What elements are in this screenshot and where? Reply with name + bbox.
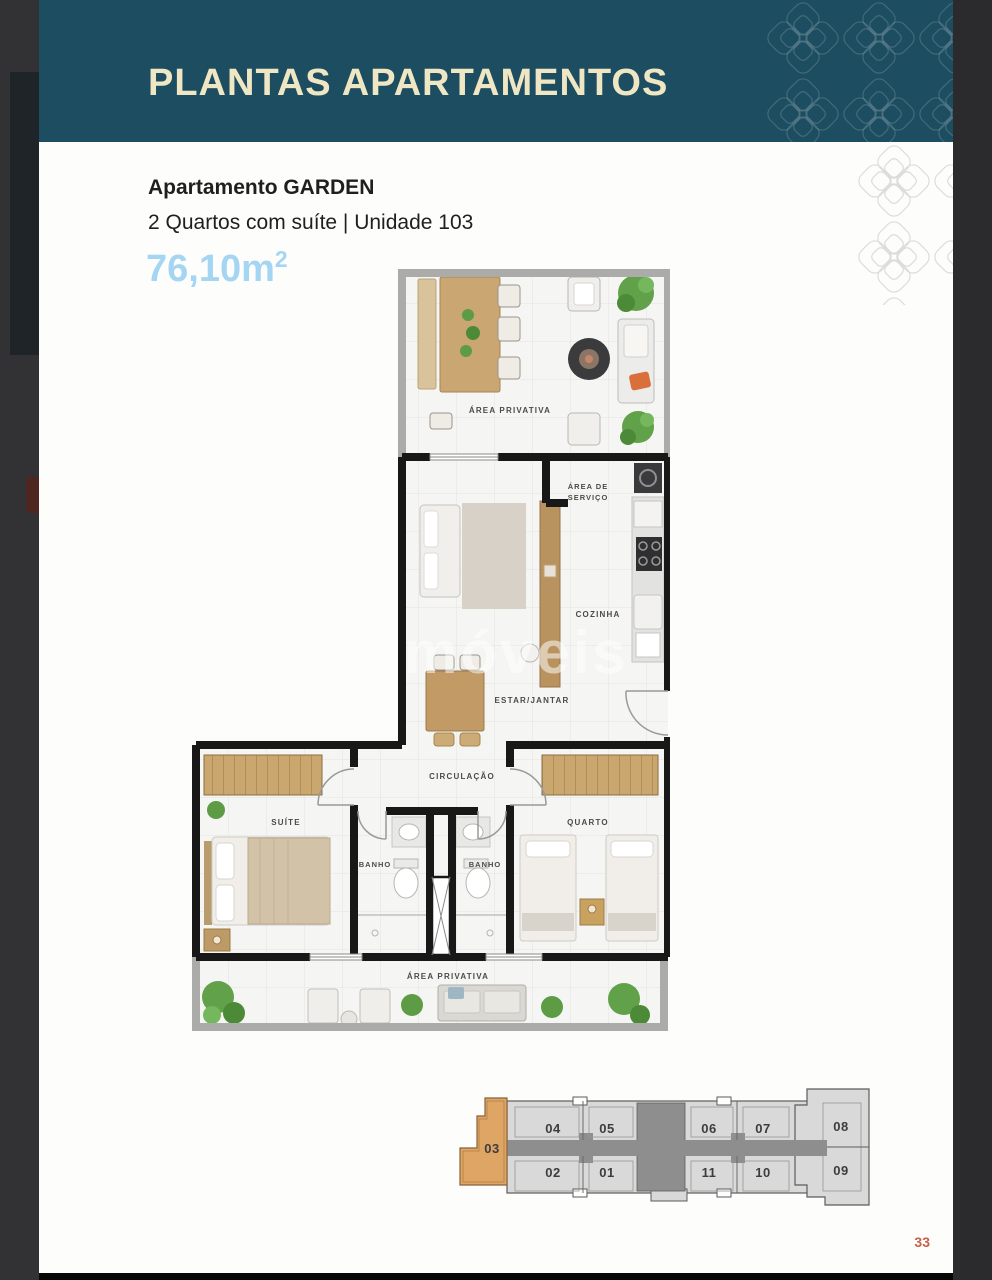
toilet	[394, 868, 418, 898]
chair	[308, 989, 338, 1023]
bed-runner	[522, 913, 574, 931]
suite-furniture	[204, 755, 330, 951]
brochure-page: PLANTAS APARTAMENTOS Apartamento GARDEN …	[0, 0, 992, 1280]
page-number: 33	[875, 1234, 930, 1250]
apartment-specs: 2 Quartos com suíte | Unidade 103	[148, 211, 473, 235]
wardrobe	[542, 755, 658, 795]
building-key-plan: 03 04 05 06 07 08 02 01 11 10 09	[455, 1085, 885, 1215]
bed-runner	[608, 913, 656, 931]
room-label-service-1: ÁREA DE	[568, 482, 608, 491]
terrace-bottom-floor	[196, 957, 664, 1029]
plant	[207, 801, 225, 819]
plant	[541, 996, 563, 1018]
unit-label-06: 06	[701, 1121, 716, 1136]
kitchen-sink	[636, 633, 660, 657]
unit-label-07: 07	[755, 1121, 770, 1136]
basin	[463, 824, 483, 840]
laundry-sink	[634, 501, 662, 527]
chair	[498, 357, 520, 379]
unit-label-08: 08	[833, 1119, 848, 1134]
page-title: PLANTAS APARTAMENTOS	[148, 62, 668, 105]
chair	[434, 733, 454, 746]
background-red-fragment	[26, 477, 39, 513]
toilet	[466, 868, 490, 898]
unit-label-10: 10	[755, 1165, 770, 1180]
unit-label-09: 09	[833, 1163, 848, 1178]
washing-machine	[634, 463, 662, 493]
background-photo-fragment	[10, 72, 39, 355]
room-label-bath-left: BANHO	[359, 860, 392, 869]
floor-plan: ÁREA PRIVATIVA	[190, 265, 670, 1035]
room-label-living: ESTAR/JANTAR	[495, 696, 570, 705]
chair	[360, 989, 390, 1023]
fridge	[634, 595, 662, 629]
blue-pillow	[448, 987, 464, 999]
rug	[462, 503, 526, 609]
plant	[401, 994, 423, 1016]
room-label-terrace-bottom: ÁREA PRIVATIVA	[407, 972, 489, 981]
basin	[399, 824, 419, 840]
room-label-terrace-top: ÁREA PRIVATIVA	[469, 406, 551, 415]
unit-label-11: 11	[702, 1165, 717, 1180]
room-label-suite: SUÍTE	[271, 818, 301, 827]
flower-pattern-margin	[856, 143, 953, 305]
corridor	[507, 1140, 827, 1156]
shaft	[432, 877, 450, 955]
background-right-strip	[953, 0, 992, 1280]
armchair	[568, 413, 600, 445]
chair	[498, 317, 520, 341]
room-label-bath-right: BANHO	[469, 860, 502, 869]
watermark: móveis	[404, 619, 629, 686]
unit-label-02: 02	[545, 1165, 560, 1180]
chair	[430, 413, 452, 429]
room-label-kitchen: COZINHA	[576, 610, 621, 619]
unit-label-05: 05	[599, 1121, 614, 1136]
chair	[460, 733, 480, 746]
page-bottom-edge	[39, 1273, 953, 1280]
unit-label-03: 03	[484, 1141, 499, 1156]
chair	[498, 285, 520, 307]
room-label-service-2: SERVIÇO	[568, 493, 609, 502]
unit-label-01: 01	[599, 1165, 614, 1180]
unit-label-04: 04	[545, 1121, 561, 1136]
bed-headboard	[204, 841, 212, 925]
apartment-name: Apartamento GARDEN	[148, 176, 374, 200]
flower-pattern-header	[765, 0, 953, 142]
room-label-bedroom: QUARTO	[567, 818, 609, 827]
room-label-hall: CIRCULAÇÃO	[429, 772, 495, 781]
wardrobe	[204, 755, 322, 795]
